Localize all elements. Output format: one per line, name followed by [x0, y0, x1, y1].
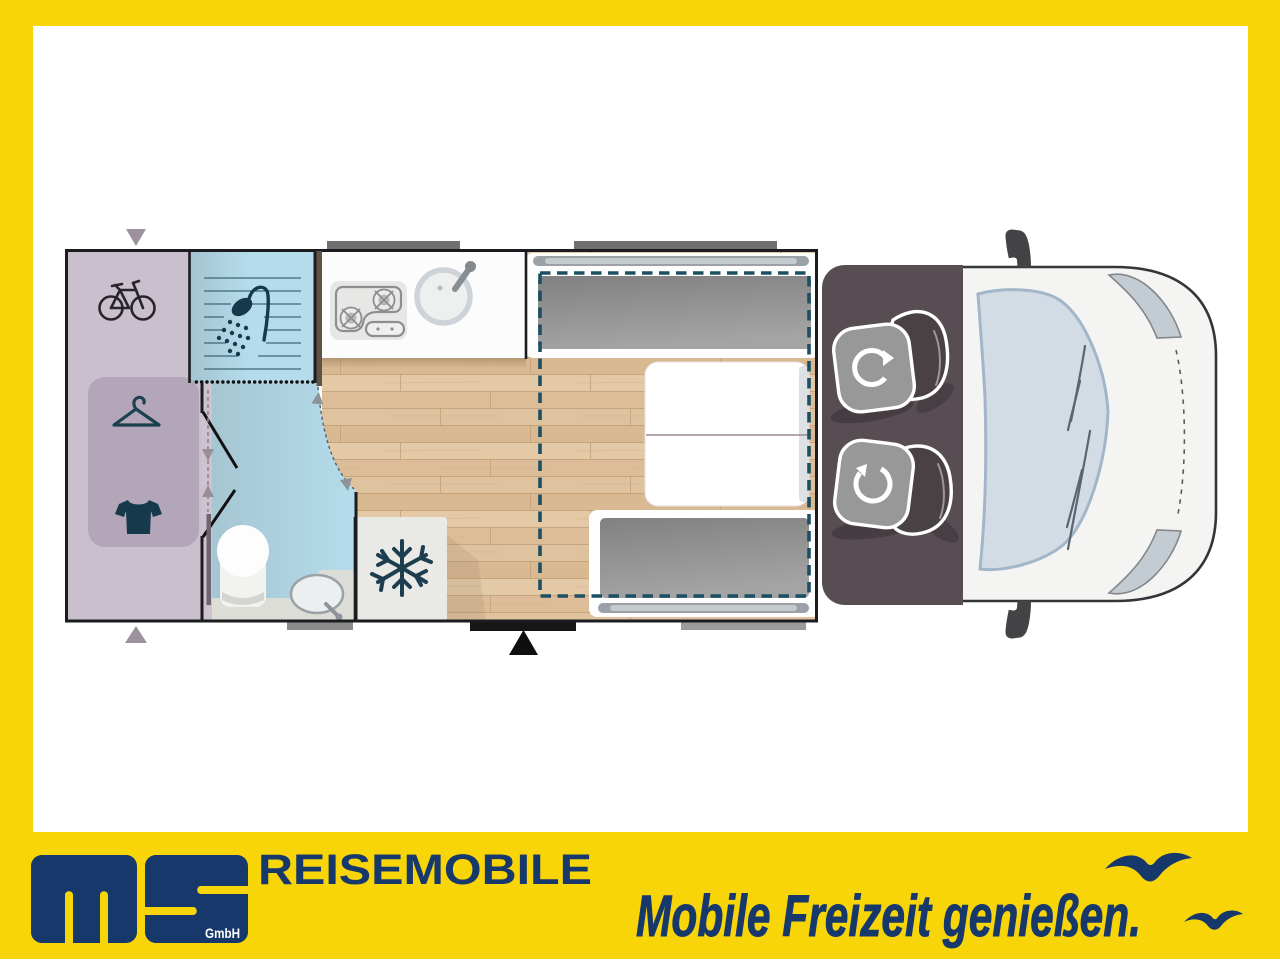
svg-text:REISEMOBILE: REISEMOBILE — [258, 846, 592, 894]
svg-text:Mobile Freizeit genießen.: Mobile Freizeit genießen. — [636, 884, 1141, 949]
svg-text:GmbH: GmbH — [205, 925, 240, 941]
